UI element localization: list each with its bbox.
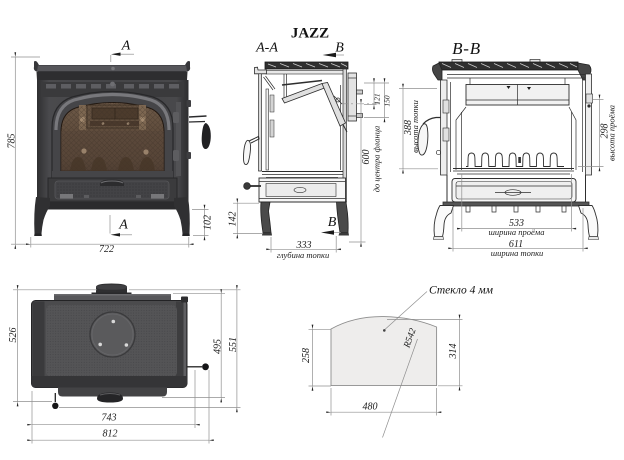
svg-text:480: 480: [363, 402, 378, 413]
svg-text:551: 551: [228, 337, 239, 352]
svg-text:526: 526: [8, 328, 19, 343]
svg-text:A: A: [121, 39, 131, 54]
svg-text:722: 722: [99, 244, 114, 255]
svg-text:785: 785: [7, 134, 18, 149]
svg-text:B-B: B-B: [452, 39, 481, 58]
svg-text:258: 258: [301, 348, 312, 363]
svg-text:JAZZ: JAZZ: [291, 26, 329, 42]
svg-text:высота проёма: высота проёма: [607, 105, 617, 161]
svg-text:121: 121: [373, 93, 382, 104]
svg-text:495: 495: [213, 339, 224, 354]
svg-text:A: A: [118, 218, 128, 233]
svg-text:до центра фланца: до центра фланца: [372, 126, 382, 193]
svg-text:ширина проёма: ширина проёма: [489, 227, 545, 237]
svg-text:743: 743: [102, 413, 117, 424]
svg-text:A-A: A-A: [255, 41, 278, 56]
svg-text:Стекло 4 мм: Стекло 4 мм: [429, 285, 494, 297]
svg-text:102: 102: [203, 215, 214, 230]
svg-text:600: 600: [361, 150, 372, 165]
svg-text:812: 812: [103, 429, 118, 440]
svg-text:150: 150: [383, 95, 392, 107]
svg-text:глубина топки: глубина топки: [277, 250, 330, 260]
svg-text:высота топки: высота топки: [410, 100, 420, 153]
svg-text:B: B: [328, 215, 337, 230]
svg-text:142: 142: [228, 212, 239, 227]
svg-text:314: 314: [448, 344, 459, 360]
svg-text:B: B: [335, 41, 344, 56]
svg-text:ширина топки: ширина топки: [491, 248, 544, 258]
